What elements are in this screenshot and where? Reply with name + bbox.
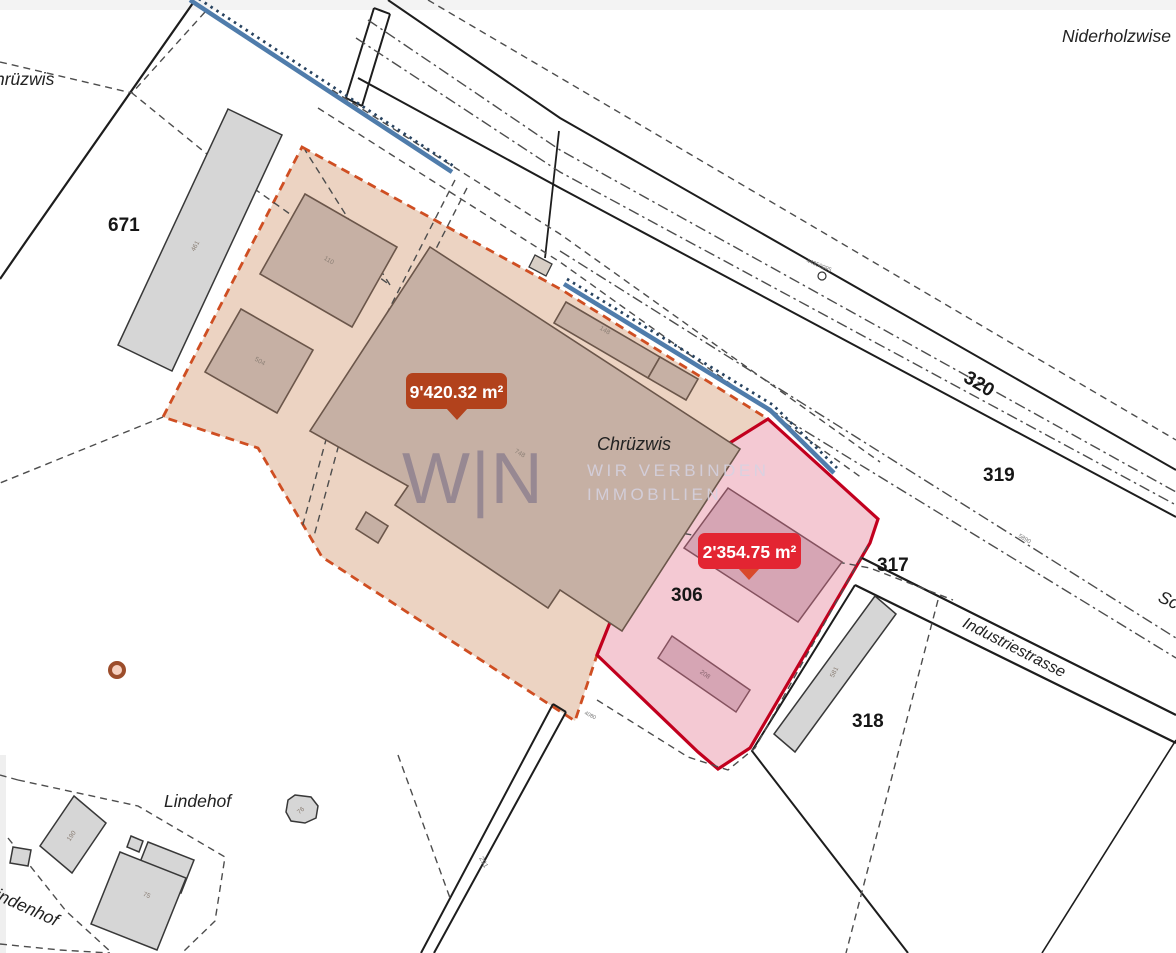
small-building xyxy=(10,847,31,866)
watermark-tagline-1: WIR VERBINDEN xyxy=(587,461,769,480)
area-label-chruezwis: Chrüzwis xyxy=(597,434,671,454)
parcel-number-317: 317 xyxy=(877,555,909,576)
area-label-chruezwis-partial: hrüzwis xyxy=(0,69,55,89)
parcel-number-318: 318 xyxy=(852,711,884,732)
orange-ring-marker xyxy=(110,663,124,677)
left-edge-strip xyxy=(0,755,6,953)
badge-area-value: 2'354.75 m² xyxy=(703,542,797,562)
badge-area-value: 9'420.32 m² xyxy=(410,382,504,402)
watermark-logo: W|N xyxy=(402,439,544,519)
parcel-number-306: 306 xyxy=(671,585,703,606)
top-edge-strip xyxy=(0,0,1176,10)
area-label-niderholzwise: Niderholzwise xyxy=(1062,26,1171,46)
watermark-tagline-2: IMMOBILIEN xyxy=(587,485,722,504)
parcel-number-319: 319 xyxy=(983,465,1015,486)
cadastral-map: Niderholzwise hrüzwis Chrüzwis Lindehof … xyxy=(0,0,1176,953)
survey-point-marker xyxy=(818,272,826,280)
cadastral-map-view: Niderholzwise hrüzwis Chrüzwis Lindehof … xyxy=(0,0,1176,953)
area-label-lindehof: Lindehof xyxy=(164,791,233,811)
parcel-number-671: 671 xyxy=(108,215,140,236)
